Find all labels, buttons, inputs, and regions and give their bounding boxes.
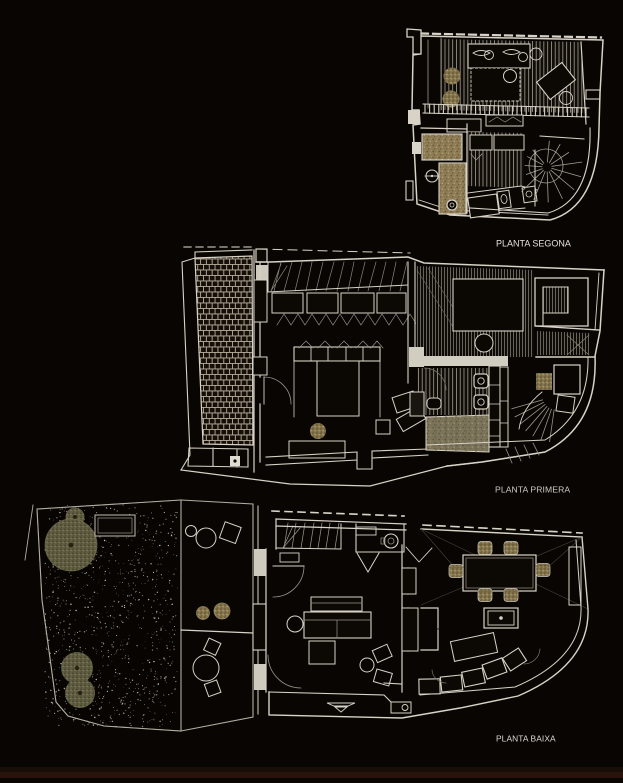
svg-text:PLANTA SEGONA: PLANTA SEGONA [496, 239, 571, 249]
svg-text:PLANTA PRIMERA: PLANTA PRIMERA [495, 485, 570, 495]
svg-text:PLANTA BAIXA: PLANTA BAIXA [496, 734, 556, 744]
